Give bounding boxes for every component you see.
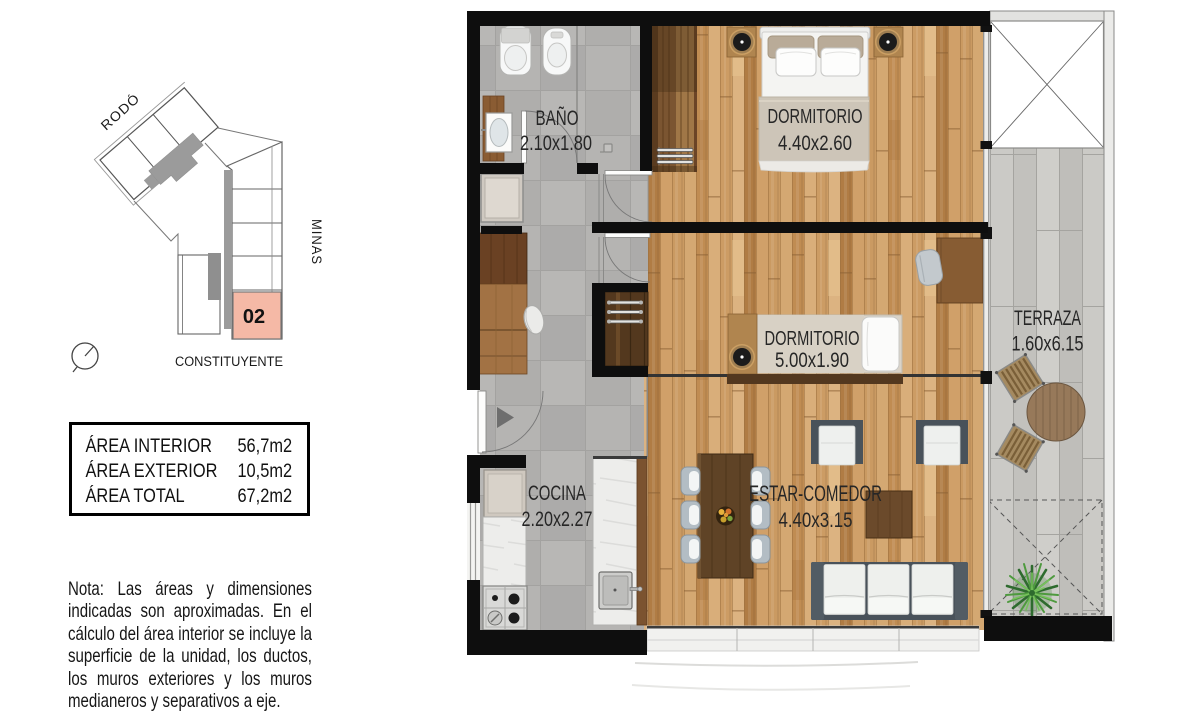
svg-text:COCINA: COCINA: [528, 482, 586, 505]
svg-text:BAÑO: BAÑO: [536, 106, 579, 130]
svg-text:2.10x1.80: 2.10x1.80: [520, 131, 592, 155]
svg-text:5.00x1.90: 5.00x1.90: [775, 348, 849, 372]
svg-text:ESTAR-COMEDOR: ESTAR-COMEDOR: [749, 481, 882, 506]
svg-text:TERRAZA: TERRAZA: [1014, 307, 1081, 330]
svg-text:DORMITORIO: DORMITORIO: [768, 105, 863, 128]
svg-text:2.20x2.27: 2.20x2.27: [522, 507, 593, 531]
svg-text:CONSTITUYENTE: CONSTITUYENTE: [175, 354, 283, 369]
svg-text:4.40x3.15: 4.40x3.15: [779, 508, 853, 532]
svg-text:1.60x6.15: 1.60x6.15: [1012, 332, 1084, 356]
svg-text:02: 02: [243, 306, 265, 328]
svg-text:RODÓ: RODÓ: [98, 91, 143, 134]
svg-text:DORMITORIO: DORMITORIO: [765, 327, 860, 350]
svg-text:4.40x2.60: 4.40x2.60: [778, 131, 852, 155]
svg-text:MINAS: MINAS: [309, 219, 324, 265]
